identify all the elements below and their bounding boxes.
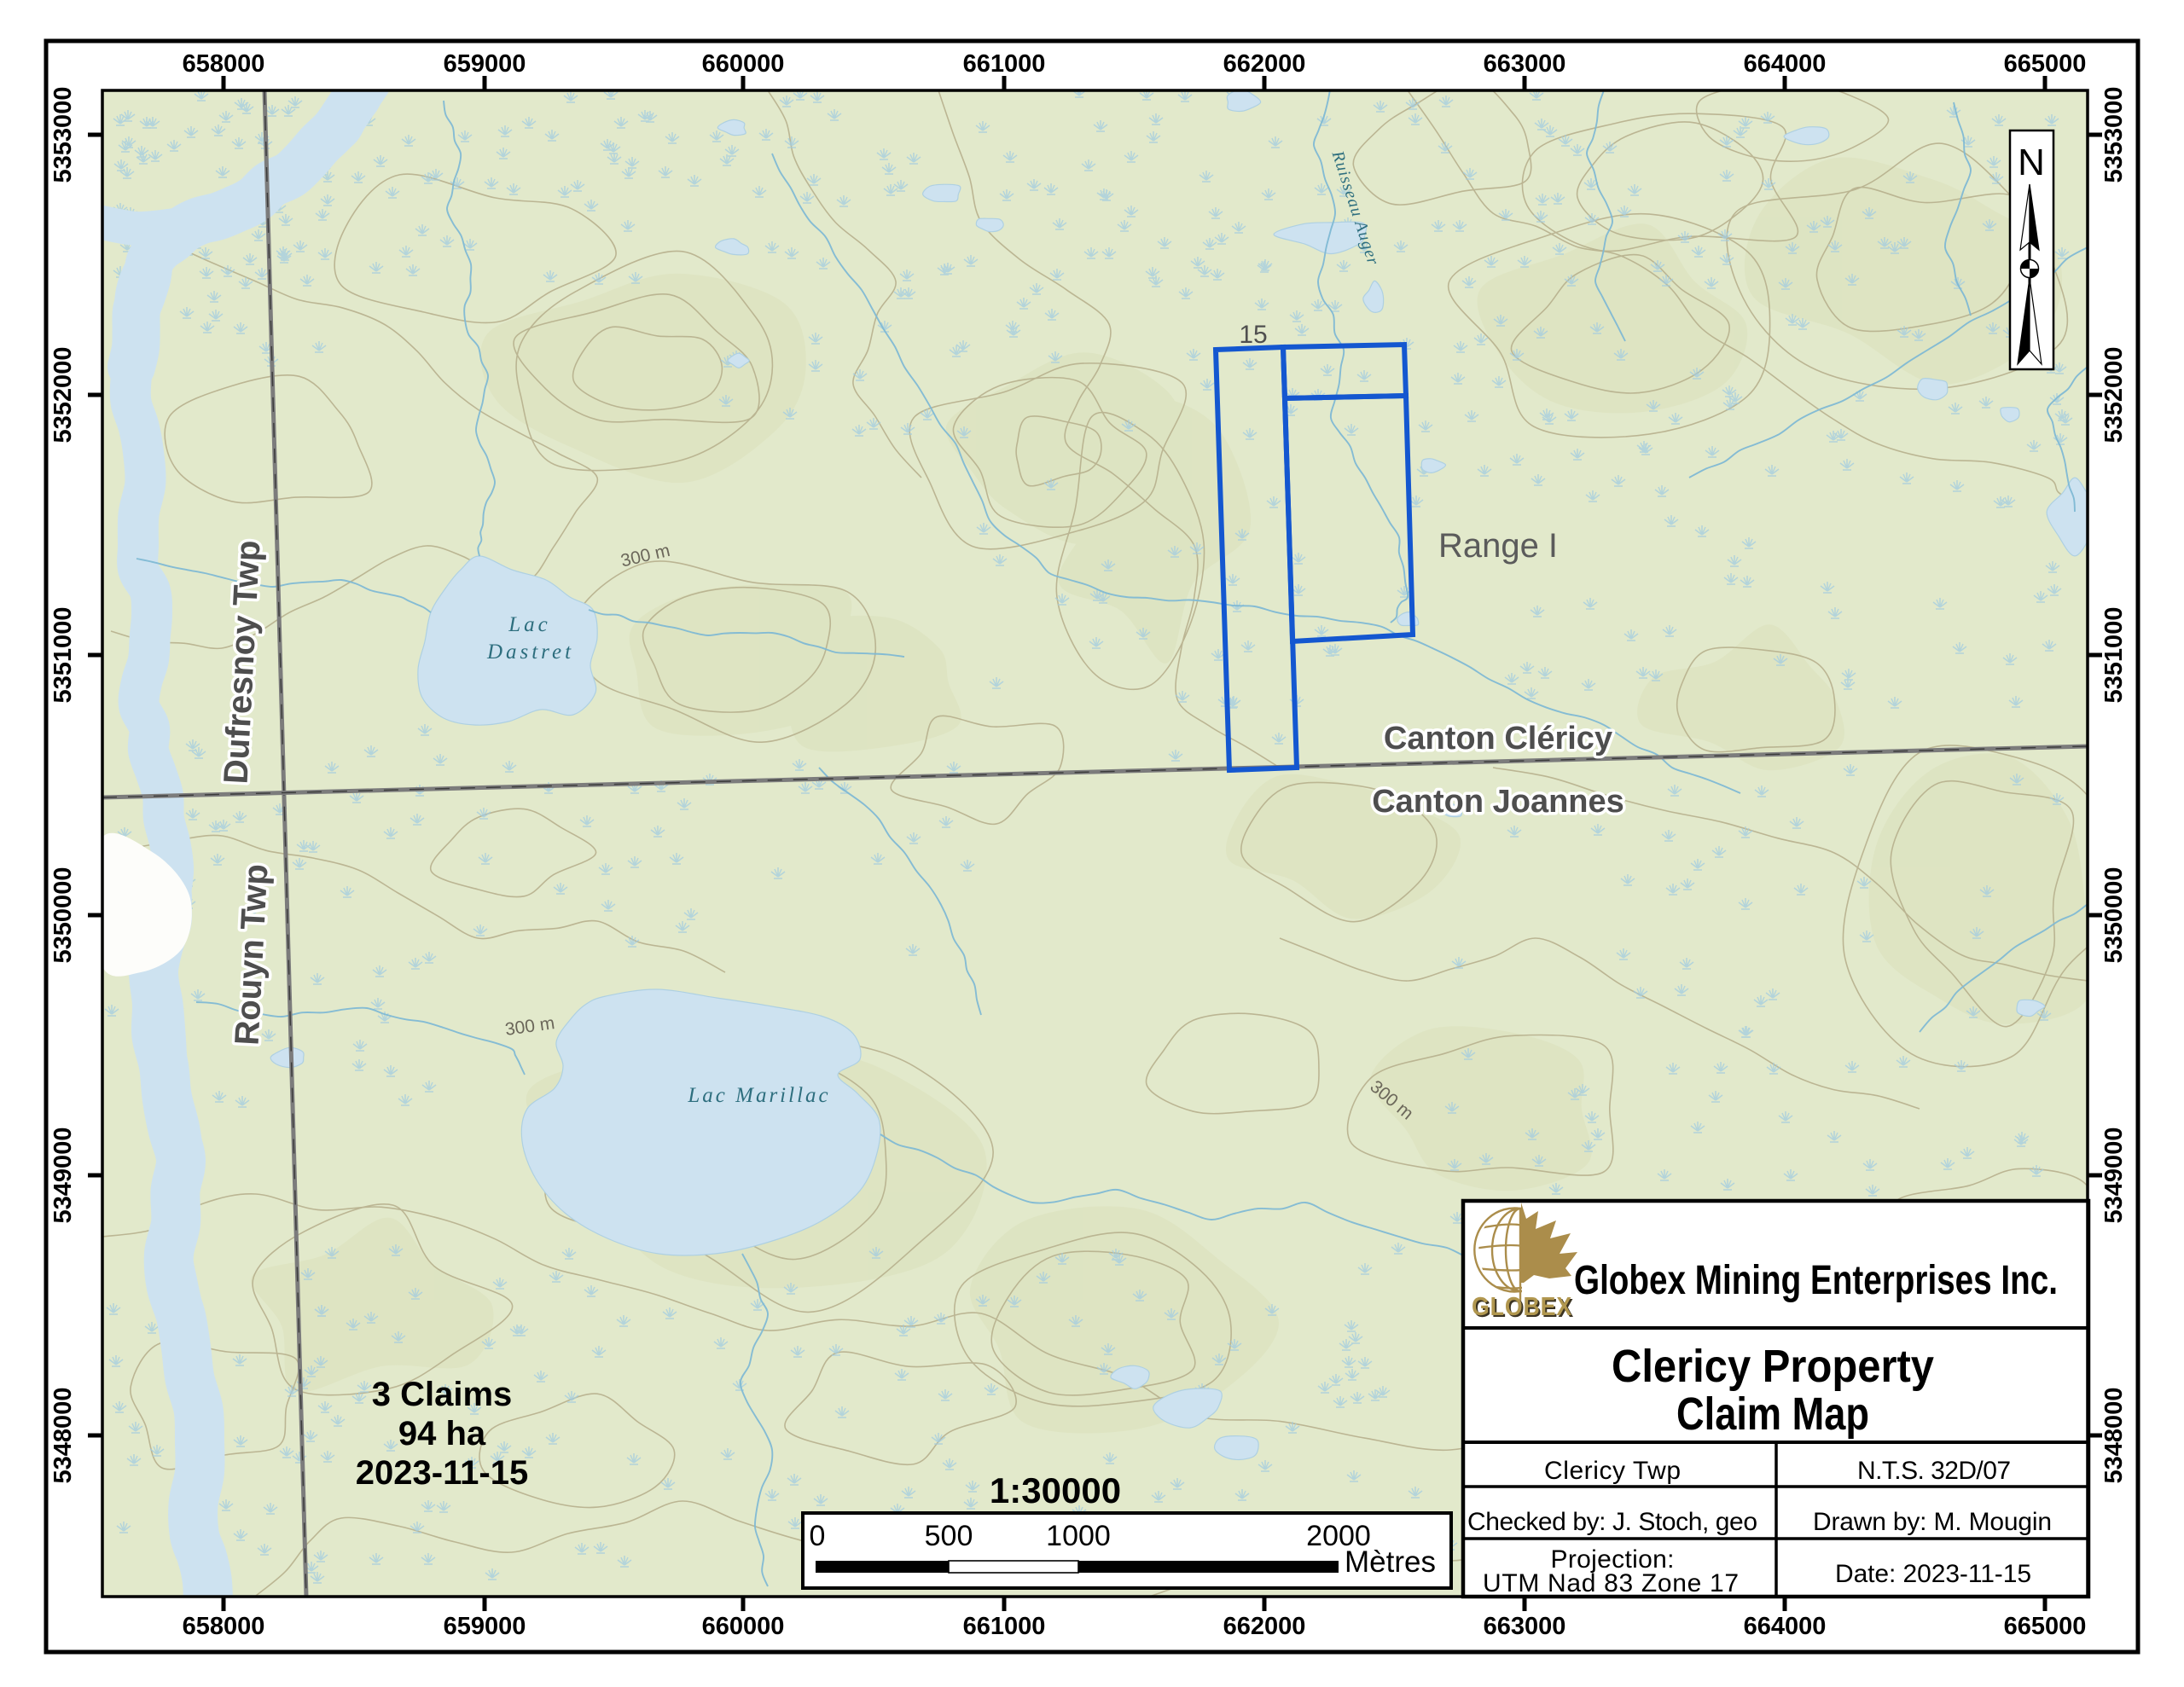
- svg-text:5352000: 5352000: [2100, 347, 2128, 443]
- svg-text:Lac: Lac: [508, 613, 551, 636]
- svg-text:5348000: 5348000: [49, 1388, 77, 1484]
- svg-text:665000: 665000: [2004, 1613, 2087, 1640]
- svg-text:Canton Cléricy: Canton Cléricy: [1384, 721, 1612, 757]
- svg-text:Drawn by: M. Mougin: Drawn by: M. Mougin: [1813, 1508, 2052, 1536]
- svg-text:5352000: 5352000: [49, 347, 77, 443]
- svg-text:661000: 661000: [963, 50, 1046, 78]
- svg-text:658000: 658000: [183, 50, 265, 78]
- svg-text:659000: 659000: [444, 1613, 526, 1640]
- svg-text:1000: 1000: [1046, 1520, 1111, 1552]
- svg-text:GLOBEX: GLOBEX: [1472, 1291, 1572, 1321]
- svg-text:N: N: [2018, 142, 2045, 183]
- svg-text:Range I: Range I: [1438, 527, 1558, 565]
- svg-text:663000: 663000: [1484, 50, 1566, 78]
- svg-text:Mètres: Mètres: [1345, 1545, 1436, 1579]
- svg-text:5349000: 5349000: [49, 1128, 77, 1224]
- svg-text:664000: 664000: [1744, 50, 1827, 78]
- svg-text:15: 15: [1239, 321, 1267, 349]
- svg-text:3 Claims: 3 Claims: [372, 1376, 513, 1413]
- svg-text:5353000: 5353000: [49, 87, 77, 183]
- svg-text:664000: 664000: [1744, 1613, 1827, 1640]
- svg-text:665000: 665000: [2004, 50, 2087, 78]
- svg-text:5353000: 5353000: [2100, 87, 2128, 183]
- svg-text:5350000: 5350000: [49, 867, 77, 964]
- svg-text:660000: 660000: [702, 50, 785, 78]
- svg-text:659000: 659000: [444, 50, 526, 78]
- svg-text:500: 500: [925, 1520, 973, 1552]
- svg-text:Globex Mining Enterprises Inc.: Globex Mining Enterprises Inc.: [1574, 1258, 2058, 1303]
- svg-text:658000: 658000: [183, 1613, 265, 1640]
- svg-text:2023-11-15: 2023-11-15: [356, 1454, 528, 1492]
- svg-text:UTM Nad 83 Zone 17: UTM Nad 83 Zone 17: [1483, 1569, 1739, 1597]
- svg-text:5351000: 5351000: [2100, 607, 2128, 704]
- svg-text:663000: 663000: [1484, 1613, 1566, 1640]
- svg-text:94 ha: 94 ha: [398, 1415, 486, 1452]
- svg-text:Clericy Twp: Clericy Twp: [1544, 1457, 1681, 1485]
- svg-text:0: 0: [810, 1520, 826, 1552]
- svg-text:Dastret: Dastret: [486, 641, 574, 664]
- svg-text:Lac Marillac: Lac Marillac: [687, 1084, 830, 1107]
- svg-text:Claim Map: Claim Map: [1676, 1388, 1869, 1440]
- svg-text:1:30000: 1:30000: [990, 1470, 1121, 1510]
- svg-text:Date: 2023-11-15: Date: 2023-11-15: [1835, 1560, 2031, 1588]
- svg-text:5350000: 5350000: [2100, 867, 2128, 964]
- svg-text:Canton Joannes: Canton Joannes: [1372, 784, 1624, 820]
- svg-text:662000: 662000: [1223, 1613, 1306, 1640]
- svg-text:661000: 661000: [963, 1613, 1046, 1640]
- svg-text:660000: 660000: [702, 1613, 785, 1640]
- svg-text:5349000: 5349000: [2100, 1128, 2128, 1224]
- svg-text:Checked by: J. Stoch, geo: Checked by: J. Stoch, geo: [1467, 1508, 1757, 1536]
- svg-text:N.T.S. 32D/07: N.T.S. 32D/07: [1857, 1457, 2011, 1485]
- svg-text:5351000: 5351000: [49, 607, 77, 704]
- svg-text:Clericy Property: Clericy Property: [1612, 1341, 1934, 1392]
- svg-text:5348000: 5348000: [2100, 1388, 2128, 1484]
- svg-text:662000: 662000: [1223, 50, 1306, 78]
